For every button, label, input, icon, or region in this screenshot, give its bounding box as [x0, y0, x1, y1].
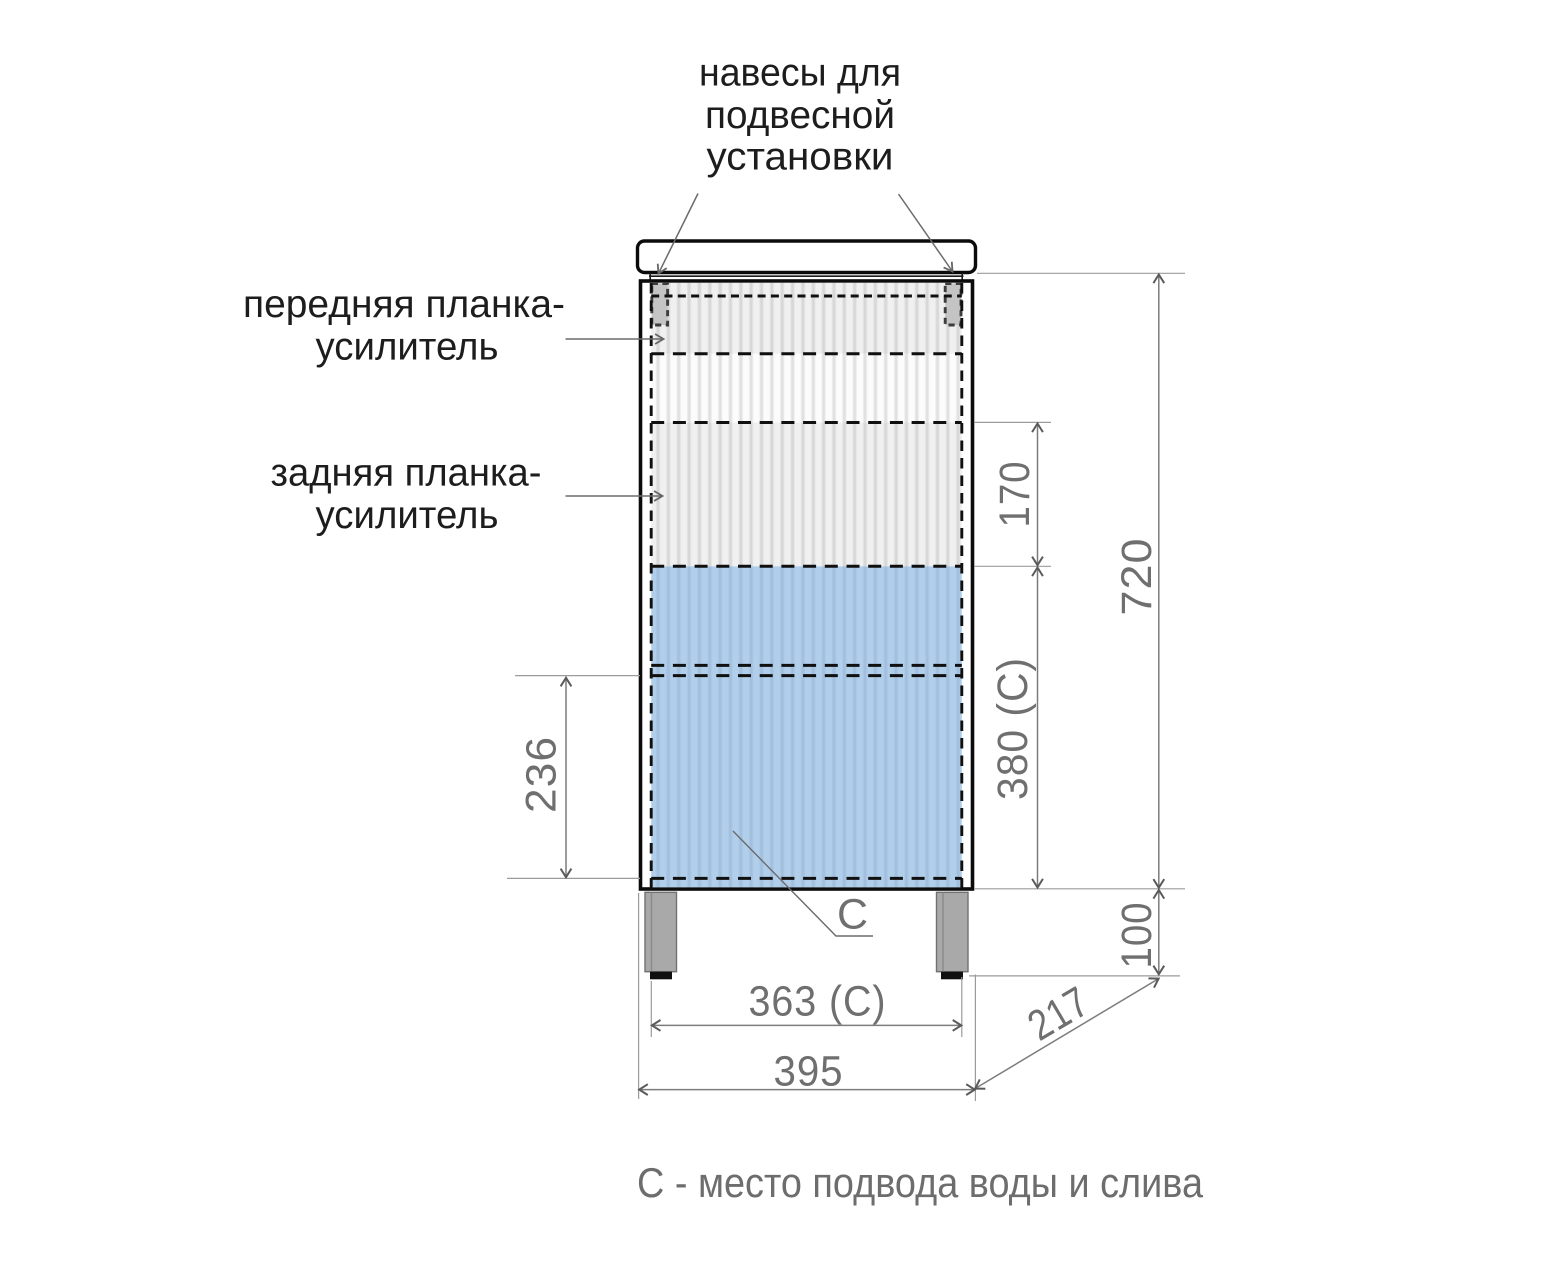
- svg-text:навесы для: навесы для: [699, 52, 901, 95]
- svg-text:C: C: [837, 891, 869, 939]
- svg-text:363 (C): 363 (C): [749, 978, 887, 1026]
- svg-text:усилитель: усилитель: [316, 326, 499, 369]
- svg-text:передняя планка-: передняя планка-: [243, 283, 565, 326]
- svg-text:236: 236: [518, 736, 566, 813]
- svg-text:установки: установки: [707, 136, 894, 179]
- svg-text:задняя планка-: задняя планка-: [271, 452, 542, 495]
- svg-text:подвесной: подвесной: [705, 94, 895, 137]
- svg-text:217: 217: [1020, 978, 1098, 1051]
- svg-text:720: 720: [1113, 538, 1161, 616]
- svg-text:395: 395: [774, 1048, 844, 1096]
- svg-text:380 (C): 380 (C): [989, 657, 1037, 800]
- svg-text:170: 170: [991, 461, 1039, 528]
- svg-text:С - место подвода воды и слива: С - место подвода воды и слива: [637, 1159, 1204, 1206]
- svg-text:усилитель: усилитель: [316, 494, 499, 537]
- svg-text:100: 100: [1113, 902, 1161, 969]
